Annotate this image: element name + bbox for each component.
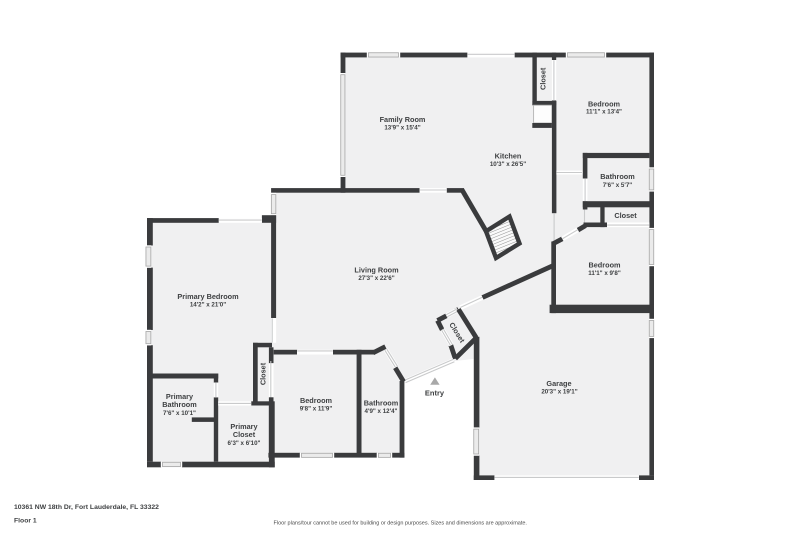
svg-text:Primary Bedroom: Primary Bedroom (177, 292, 239, 301)
svg-text:Bedroom: Bedroom (588, 99, 621, 108)
svg-text:27'3" x 22'6": 27'3" x 22'6" (358, 275, 394, 282)
svg-text:7'6" x 10'1": 7'6" x 10'1" (163, 410, 196, 417)
svg-text:Closet: Closet (539, 67, 548, 90)
svg-text:13'9" x 15'4": 13'9" x 15'4" (384, 125, 420, 132)
svg-text:Family Room: Family Room (380, 115, 426, 124)
svg-text:Closet: Closet (614, 211, 637, 220)
svg-text:4'9" x 12'4": 4'9" x 12'4" (365, 408, 398, 415)
svg-text:20'3" x 19'1": 20'3" x 19'1" (541, 389, 577, 396)
svg-text:Bathroom: Bathroom (600, 172, 635, 181)
svg-text:14'2" x 21'0": 14'2" x 21'0" (190, 302, 226, 309)
svg-text:Living Room: Living Room (354, 265, 399, 274)
svg-text:Bathroom: Bathroom (162, 400, 197, 409)
svg-text:Floor plans/tour cannot be use: Floor plans/tour cannot be used for buil… (274, 520, 528, 526)
svg-text:Entry: Entry (425, 389, 445, 398)
svg-text:Bedroom: Bedroom (588, 261, 621, 270)
svg-text:11'1" x 13'4": 11'1" x 13'4" (586, 109, 622, 116)
svg-text:9'8" x 11'9": 9'8" x 11'9" (300, 406, 333, 413)
svg-text:Closet: Closet (258, 362, 267, 385)
svg-text:Bedroom: Bedroom (300, 396, 333, 405)
svg-text:10'3" x 26'5": 10'3" x 26'5" (490, 161, 526, 168)
svg-text:10361 NW 18th Dr, Fort Lauderd: 10361 NW 18th Dr, Fort Lauderdale, FL 33… (14, 504, 159, 511)
svg-text:11'1" x 9'8": 11'1" x 9'8" (588, 270, 621, 277)
svg-text:Bathroom: Bathroom (364, 399, 399, 408)
svg-text:Floor 1: Floor 1 (14, 518, 37, 525)
svg-text:Garage: Garage (546, 379, 571, 388)
svg-text:Kitchen: Kitchen (495, 151, 522, 160)
svg-text:Closet: Closet (233, 430, 256, 439)
svg-text:6'3" x 6'10": 6'3" x 6'10" (228, 440, 261, 447)
svg-text:7'6" x 5'7": 7'6" x 5'7" (603, 182, 633, 189)
